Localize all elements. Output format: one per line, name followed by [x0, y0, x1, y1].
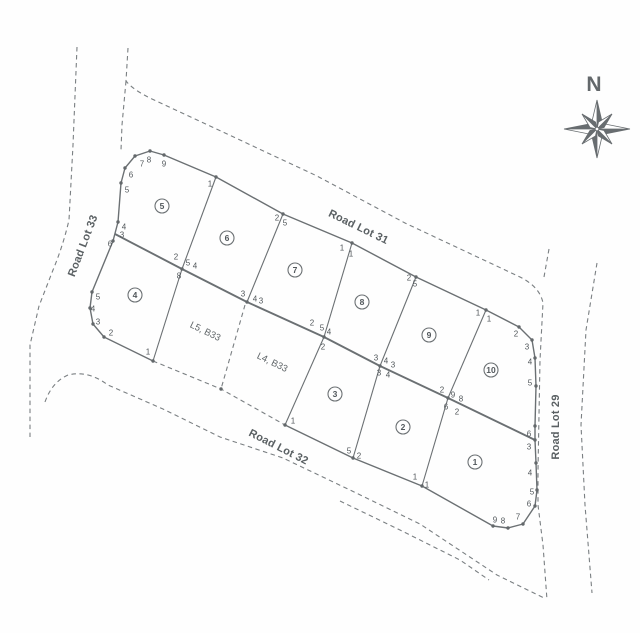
lot-4-label: 4 [128, 288, 142, 302]
vertex-number: 2 [440, 386, 445, 395]
vertex-number: 7 [140, 160, 145, 169]
vertex-number: 2 [174, 253, 179, 262]
road32-outer-line [340, 501, 489, 580]
vertex-number: 6 [527, 500, 532, 509]
vertex-number: 8 [501, 517, 506, 526]
vertex-number: 6 [129, 171, 134, 180]
vertex-number: 3 [241, 290, 246, 299]
vertex-number: 5 [96, 293, 101, 302]
vertex-number: 3 [120, 231, 125, 240]
lot-number: 6 [225, 233, 230, 243]
road33-west-edge [30, 47, 77, 437]
vertex-number: 3 [259, 297, 264, 306]
lot-number: 8 [360, 297, 365, 307]
plat-page: Road Lot 31Road Lot 32Road Lot 33Road Lo… [0, 0, 640, 633]
lot-number: 4 [133, 290, 138, 300]
vertex-number: 3 [96, 318, 101, 327]
vertex-number: 1 [425, 481, 430, 490]
vertex-number: 5 [186, 259, 191, 268]
lot-number-labels: 56789104321 [128, 199, 498, 469]
survey-point-markers [90, 151, 537, 528]
vertex-number: 6 [527, 430, 532, 439]
road31-north-edge [126, 48, 547, 600]
vertex-number: 2 [455, 408, 460, 417]
vertex-number: 3 [525, 343, 530, 352]
lot-6-label: 6 [220, 231, 234, 245]
vertex-number: 8 [147, 156, 152, 165]
vertex-number: 5 [320, 324, 325, 333]
vertex-number: 1 [291, 417, 296, 426]
vertex-number: 4 [528, 469, 533, 478]
divider-lot4-east [153, 269, 182, 361]
vertex-number: 1 [476, 309, 481, 318]
divider-3-2 [353, 366, 380, 458]
vertex-number: 7 [516, 513, 521, 522]
road-label: Road Lot 33 [66, 213, 101, 278]
vertex-number: 5 [413, 280, 418, 289]
vertex-number: 5 [283, 219, 288, 228]
lot-10-label: 10 [484, 363, 498, 377]
road29-east-edge [581, 263, 597, 593]
vertex-number: 2 [109, 329, 114, 338]
divider-6-7 [247, 214, 283, 302]
vertex-number: 3 [391, 361, 396, 370]
divider-5-6 [182, 177, 216, 269]
lot-3-label: 3 [328, 387, 342, 401]
vertex-number: 9 [493, 516, 498, 525]
vertex-number: 3 [527, 443, 532, 452]
vertex-number: 8 [177, 272, 182, 281]
lot-number: 3 [333, 389, 338, 399]
vertex-number: 2 [310, 319, 315, 328]
lot-2-label: 2 [396, 420, 410, 434]
vertex-number: 5 [125, 186, 130, 195]
vertex-number: 4 [384, 357, 389, 366]
lot-7-label: 7 [288, 263, 302, 277]
vertex-number: 4 [528, 358, 533, 367]
block-outline-west [90, 183, 153, 361]
vertex-number: 4 [91, 305, 96, 314]
vertex-number: 3 [374, 354, 379, 363]
vertex-number: 5 [528, 379, 533, 388]
lot-number: 1 [473, 457, 478, 467]
block33-south-boundary [153, 361, 285, 425]
vertex-number: 1 [208, 180, 213, 189]
vertex-number: 1 [349, 250, 354, 259]
north-label: N [586, 73, 601, 96]
compass-star-icon [564, 100, 630, 158]
divider-9-10 [448, 310, 486, 398]
divider-lot3-west [285, 337, 324, 425]
vertex-number: 1 [146, 348, 151, 357]
vertex-number: 4 [327, 328, 332, 337]
vertex-number: 6 [444, 403, 449, 412]
plat-drawing: Road Lot 31Road Lot 32Road Lot 33Road Lo… [0, 0, 640, 633]
divider-8-9 [380, 277, 416, 366]
vertex-number: 1 [340, 244, 345, 253]
lot-number: 7 [293, 265, 298, 275]
road33-east-edge-top [121, 81, 126, 150]
lot-8-label: 8 [355, 295, 369, 309]
road29-west-edge-stub [544, 249, 549, 277]
vertex-number: 1 [487, 315, 492, 324]
vertex-number: 5 [530, 488, 535, 497]
lot-number: 2 [401, 422, 406, 432]
vertex-number: 4 [193, 262, 198, 271]
vertex-number: 8 [459, 395, 464, 404]
vertex-number: 2 [275, 214, 280, 223]
lot-1-label: 1 [468, 455, 482, 469]
vertex-number: 2 [514, 330, 519, 339]
vertex-number: 6 [108, 240, 113, 249]
vertex-number: 5 [347, 447, 352, 456]
road-label: Road Lot 31 [326, 208, 390, 247]
block33-lot-divider [221, 305, 245, 389]
vertex-number: 3 [377, 369, 382, 378]
vertex-number: 2 [357, 452, 362, 461]
vertex-number: 4 [386, 371, 391, 380]
vertex-number: 9 [451, 391, 456, 400]
road-label: Road Lot 29 [550, 394, 562, 459]
adjacent-lot-labels: L5, B33L4, B33 [188, 320, 289, 375]
adjacent-lot-label: L5, B33 [188, 320, 222, 344]
vertex-number: 2 [321, 343, 326, 352]
compass-rose: N [564, 73, 630, 158]
lot-5-label: 5 [155, 199, 169, 213]
subdivision-block [90, 151, 537, 528]
lot-number: 9 [427, 330, 432, 340]
vertex-number: 2 [407, 274, 412, 283]
adjacent-lot-label: L4, B33 [255, 351, 289, 375]
vertex-number: 9 [162, 160, 167, 169]
vertex-number: 4 [253, 295, 258, 304]
lot-number: 5 [160, 201, 165, 211]
lot-9-label: 9 [422, 328, 436, 342]
vertex-number: 1 [413, 473, 418, 482]
lot-number: 10 [486, 365, 496, 375]
